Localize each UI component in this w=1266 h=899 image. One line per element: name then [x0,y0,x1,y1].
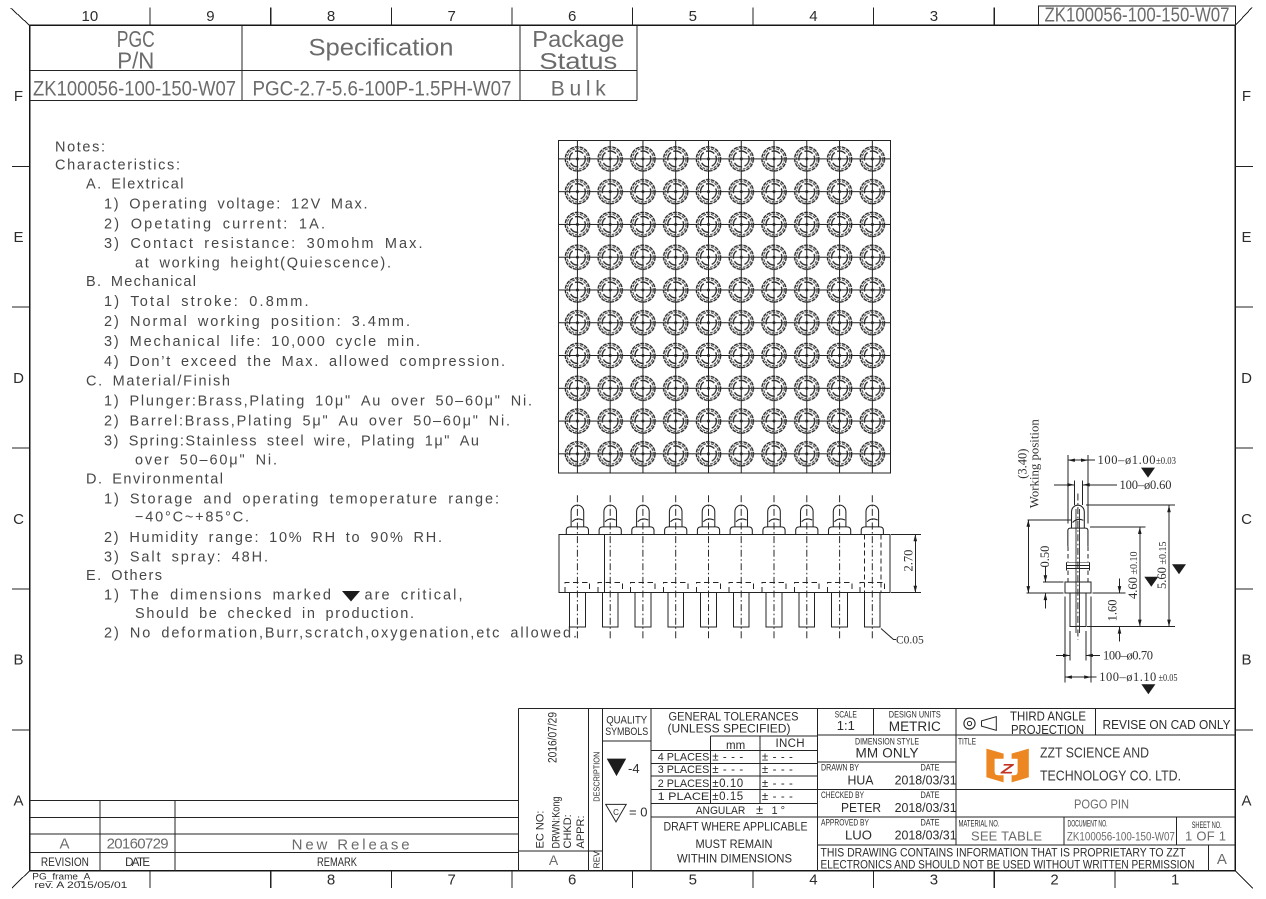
svg-text:Specification: Specification [309,35,454,62]
svg-text:20160729: 20160729 [107,836,169,853]
svg-text:PGC-2.7-5.6-100P-1.5PH-W07: PGC-2.7-5.6-100P-1.5PH-W07 [253,78,512,101]
svg-text:±0.15: ±0.15 [1158,542,1169,565]
svg-text:4: 4 [809,872,817,889]
svg-text:2) Normal working position: 3.: 2) Normal working position: 3.4mm. [104,314,410,330]
svg-text:1:1: 1:1 [837,718,855,733]
svg-text:A: A [549,852,559,868]
svg-text:Should be checked in productio: Should be checked in production. [135,606,414,622]
svg-text:Status: Status [539,48,617,74]
svg-text:PETER: PETER [841,800,881,815]
svg-text:Z: Z [999,761,1014,776]
svg-text:MM ONLY: MM ONLY [856,746,919,761]
svg-text:−40°C~+85°C.: −40°C~+85°C. [135,510,249,526]
svg-text:100–ø0.70: 100–ø0.70 [1103,648,1153,662]
svg-text:7: 7 [447,872,455,889]
svg-text:D. Environmental: D. Environmental [86,472,223,488]
svg-text:REMARK: REMARK [317,857,357,869]
svg-text:DESCRIPTION: DESCRIPTION [592,752,602,802]
svg-text:ZZT SCIENCE AND: ZZT SCIENCE AND [1040,745,1149,761]
svg-text:= 0: = 0 [629,805,647,820]
svg-text:9: 9 [206,8,214,25]
svg-text:INCH: INCH [776,738,805,750]
svg-text:ZK100056-100-150-W07: ZK100056-100-150-W07 [1045,4,1230,26]
svg-text:±0.10: ±0.10 [712,778,743,790]
svg-text:1 °: 1 ° [772,805,786,817]
svg-text:over 50–60μʺ Ni.: over 50–60μʺ Ni. [135,453,277,469]
svg-text:MUST REMAIN: MUST REMAIN [696,839,773,851]
svg-text:GENERAL TOLERANCES: GENERAL TOLERANCES [669,712,799,724]
svg-text:B: B [13,652,23,669]
svg-text:5.60: 5.60 [1155,567,1169,589]
svg-text:3: 3 [930,872,938,889]
svg-text:DATE: DATE [921,818,940,828]
svg-text:A: A [1217,851,1227,868]
svg-text:Notes:: Notes: [55,140,105,156]
svg-text:SEE TABLE: SEE TABLE [971,828,1042,843]
svg-text:rev. A 2015/05/01: rev. A 2015/05/01 [34,880,127,891]
svg-text:TECHNOLOGY CO. LTD.: TECHNOLOGY CO. LTD. [1040,768,1181,784]
svg-text:1: 1 [1171,872,1179,889]
svg-text:DESIGN UNITS: DESIGN UNITS [889,710,941,720]
svg-text:±: ± [756,802,763,817]
svg-text:4: 4 [809,8,817,25]
svg-text:A: A [13,793,23,810]
svg-text:10: 10 [82,8,99,25]
svg-text:B: B [1241,652,1251,669]
svg-text:8: 8 [327,872,335,889]
svg-text:REVISION: REVISION [41,857,89,869]
svg-text:CHKD:: CHKD: [562,814,574,848]
svg-text:±0.05: ±0.05 [1159,673,1178,684]
svg-text:DOCUMENT NO.: DOCUMENT NO. [1068,818,1108,828]
svg-text:5: 5 [689,872,697,889]
svg-text:WITHIN DIMENSIONS: WITHIN DIMENSIONS [677,854,792,866]
svg-text:2018/03/31: 2018/03/31 [895,773,957,788]
svg-text:6: 6 [568,8,576,25]
svg-text:2) Barrel:Brass,Plating 5μʺ Au: 2) Barrel:Brass,Plating 5μʺ Au over 50–6… [104,414,510,430]
svg-text:SYMBOLS: SYMBOLS [605,726,648,738]
svg-text:±0.03: ±0.03 [1156,456,1176,467]
svg-text:F: F [14,88,23,105]
svg-text:DATE: DATE [125,857,150,869]
svg-text:mm: mm [726,740,745,752]
svg-text:Working position: Working position [1027,418,1041,508]
svg-text:1) The dimensions marked: 1) The dimensions marked [104,588,331,604]
svg-text:C: C [613,808,619,817]
svg-text:3 PLACES: 3 PLACES [658,764,710,776]
svg-text:ANGULAR: ANGULAR [696,805,746,817]
svg-text:1) Total stroke: 0.8mm.: 1) Total stroke: 0.8mm. [104,294,309,310]
svg-text:are critical,: are critical, [365,588,463,604]
svg-text:D: D [1241,370,1252,387]
svg-text:6: 6 [568,872,576,889]
svg-text:DRAFT WHERE APPLICABLE: DRAFT WHERE APPLICABLE [664,822,808,834]
svg-text:2018/03/31: 2018/03/31 [895,800,957,815]
svg-text:PROJECTION: PROJECTION [1011,723,1084,737]
svg-text:APPROVED BY: APPROVED BY [821,818,869,828]
svg-text:REV: REV [592,851,602,869]
svg-text:ELECTRONICS AND SHOULD NOT BE: ELECTRONICS AND SHOULD NOT BE USED WITHO… [821,860,1195,872]
svg-text:ZK100056-100-150-W07: ZK100056-100-150-W07 [1067,829,1175,843]
svg-text:1) Plunger:Brass,Plating 10μʺ: 1) Plunger:Brass,Plating 10μʺ Au over 50… [104,394,532,410]
svg-text:5: 5 [689,8,697,25]
svg-text:2: 2 [1050,872,1058,889]
svg-text:C0.05: C0.05 [896,635,924,647]
svg-text:3) Mechanical life: 10,000 cyc: 3) Mechanical life: 10,000 cycle min. [104,334,420,350]
svg-text:LUO: LUO [845,828,872,843]
svg-text:8: 8 [327,8,335,25]
svg-text:DRAWN BY: DRAWN BY [821,763,859,773]
svg-text:DATE: DATE [921,790,940,800]
svg-text:F: F [1242,88,1251,105]
svg-text:C. Material/Finish: C. Material/Finish [86,374,230,390]
svg-text:±0.15: ±0.15 [712,791,743,803]
svg-text:C: C [13,511,24,528]
svg-text:1) Storage and operating temop: 1) Storage and operating temoperature ra… [104,492,499,508]
svg-text:-4: -4 [628,761,640,776]
svg-text:(UNLESS SPECIFIED): (UNLESS SPECIFIED) [668,723,791,735]
svg-text:C: C [1241,511,1252,528]
svg-text:2) Humidity range: 10% RH to 9: 2) Humidity range: 10% RH to 90% RH. [104,530,442,546]
svg-text:A. Elextrical: A. Elextrical [86,177,184,193]
svg-text:REVISE ON CAD ONLY: REVISE ON CAD ONLY [1103,717,1231,732]
svg-text:A: A [1241,793,1251,810]
svg-text:1) Operating voltage: 12V Max.: 1) Operating voltage: 12V Max. [104,197,368,213]
svg-text:THIS DRAWING CONTAINS INFORMAT: THIS DRAWING CONTAINS INFORMATION THAT I… [821,848,1186,860]
svg-text:4.60: 4.60 [1126,577,1140,599]
svg-text:1.60: 1.60 [1105,599,1119,621]
svg-text:New Release: New Release [292,837,410,854]
svg-text:METRIC: METRIC [889,719,941,734]
svg-text:3) Spring:Stainless steel wire: 3) Spring:Stainless steel wire, Plating … [104,434,479,450]
svg-text:EC NO:: EC NO: [535,811,547,849]
svg-text:DATE: DATE [921,763,940,773]
svg-text:0.50: 0.50 [1038,546,1052,568]
svg-text:ZK100056-100-150-W07: ZK100056-100-150-W07 [33,78,236,101]
svg-text:2018/03/31: 2018/03/31 [895,828,957,843]
svg-text:100–ø1.10: 100–ø1.10 [1099,670,1156,684]
svg-text:3: 3 [930,8,938,25]
svg-text:P/N: P/N [117,48,154,74]
svg-text:THIRD ANGLE: THIRD ANGLE [1010,710,1086,724]
svg-text:1 OF 1: 1 OF 1 [1185,828,1226,843]
svg-text:2) Opetating current: 1A.: 2) Opetating current: 1A. [104,217,325,233]
svg-text:2 PLACES: 2 PLACES [658,778,710,790]
svg-text:E: E [1241,229,1251,246]
svg-text:Characteristics:: Characteristics: [55,158,180,174]
svg-text:E. Others: E. Others [86,568,162,584]
svg-text:DRWN:Kong: DRWN:Kong [551,797,563,849]
svg-text:A: A [59,836,69,853]
svg-text:APPR:: APPR: [575,815,587,848]
svg-text:2.70: 2.70 [901,550,915,572]
svg-text:7: 7 [447,8,455,25]
svg-text:4 PLACES: 4 PLACES [658,752,710,764]
svg-text:4) Don’t exceed the Max. allow: 4) Don’t exceed the Max. allowed compres… [104,354,505,370]
svg-text:±0.10: ±0.10 [1129,552,1140,575]
svg-text:CHECKED BY: CHECKED BY [821,790,864,800]
svg-text:100–ø0.60: 100–ø0.60 [1120,478,1172,492]
svg-text:2016/07/29: 2016/07/29 [548,712,560,763]
svg-text:2) No deformation,Burr,scratch: 2) No deformation,Burr,scratch,oxygenati… [104,626,577,642]
svg-text:100–ø1.00: 100–ø1.00 [1098,453,1156,467]
svg-text:POGO PIN: POGO PIN [1074,796,1129,811]
svg-text:TITLE: TITLE [958,737,976,747]
svg-text:1 PLACE: 1 PLACE [658,791,710,803]
svg-text:D: D [13,370,24,387]
svg-text:Bulk: Bulk [551,78,607,101]
svg-text:QUALITY: QUALITY [606,715,648,727]
svg-text:E: E [13,229,23,246]
svg-text:HUA: HUA [848,773,874,788]
svg-text:MATERIAL NO.: MATERIAL NO. [959,818,1000,828]
